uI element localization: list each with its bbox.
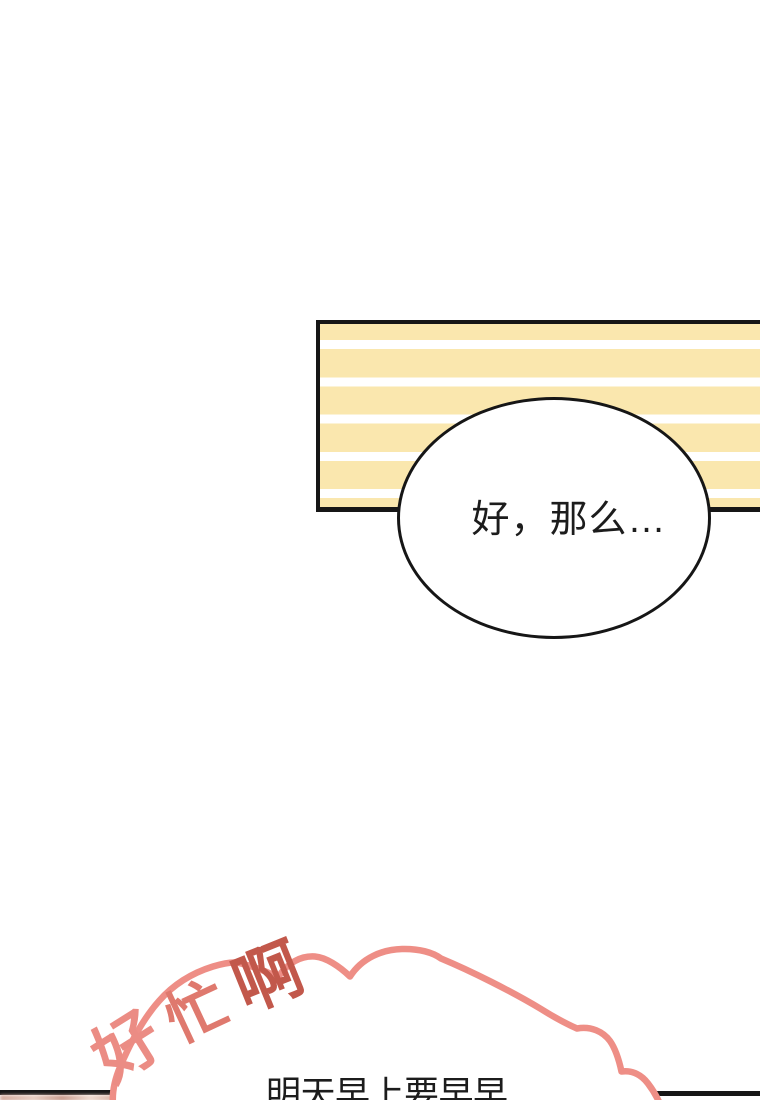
exclamation-char: 忙 <box>157 973 237 1053</box>
cloud-bubble <box>0 0 760 1100</box>
cloud-bubble-text: 明天早上要早早 <box>266 1077 508 1100</box>
comic-panel: 好，那么… 好 忙 啊 明天早上要早早 <box>0 0 760 1100</box>
